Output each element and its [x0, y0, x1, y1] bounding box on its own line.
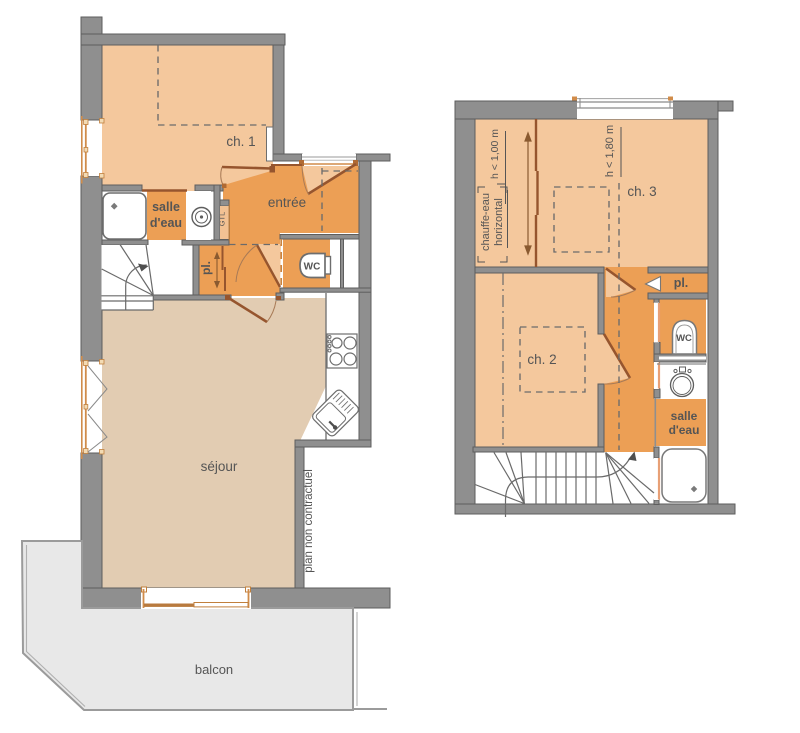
- svg-text:entrée: entrée: [268, 195, 306, 210]
- svg-text:ch. 3: ch. 3: [627, 184, 656, 199]
- svg-text:h < 1,80 m: h < 1,80 m: [604, 125, 616, 177]
- svg-text:chauffe-eau: chauffe-eau: [480, 193, 492, 251]
- svg-text:salle: salle: [671, 409, 698, 423]
- svg-text:plan non contractuel: plan non contractuel: [303, 469, 315, 573]
- svg-text:séjour: séjour: [201, 459, 238, 474]
- svg-text:ch. 2: ch. 2: [527, 352, 556, 367]
- svg-text:pl.: pl.: [674, 276, 689, 290]
- svg-text:salle: salle: [152, 200, 180, 214]
- svg-text:ch. 1: ch. 1: [226, 134, 255, 149]
- svg-text:d'eau: d'eau: [150, 216, 182, 230]
- svg-text:pl.: pl.: [199, 261, 213, 275]
- svg-text:h < 1,00 m: h < 1,00 m: [489, 129, 501, 179]
- svg-text:GTL: GTL: [218, 212, 227, 227]
- svg-text:balcon: balcon: [195, 662, 233, 677]
- svg-text:WC: WC: [304, 262, 321, 273]
- svg-text:d'eau: d'eau: [669, 423, 700, 437]
- svg-text:horizontal: horizontal: [493, 198, 505, 246]
- svg-text:WC: WC: [676, 333, 692, 344]
